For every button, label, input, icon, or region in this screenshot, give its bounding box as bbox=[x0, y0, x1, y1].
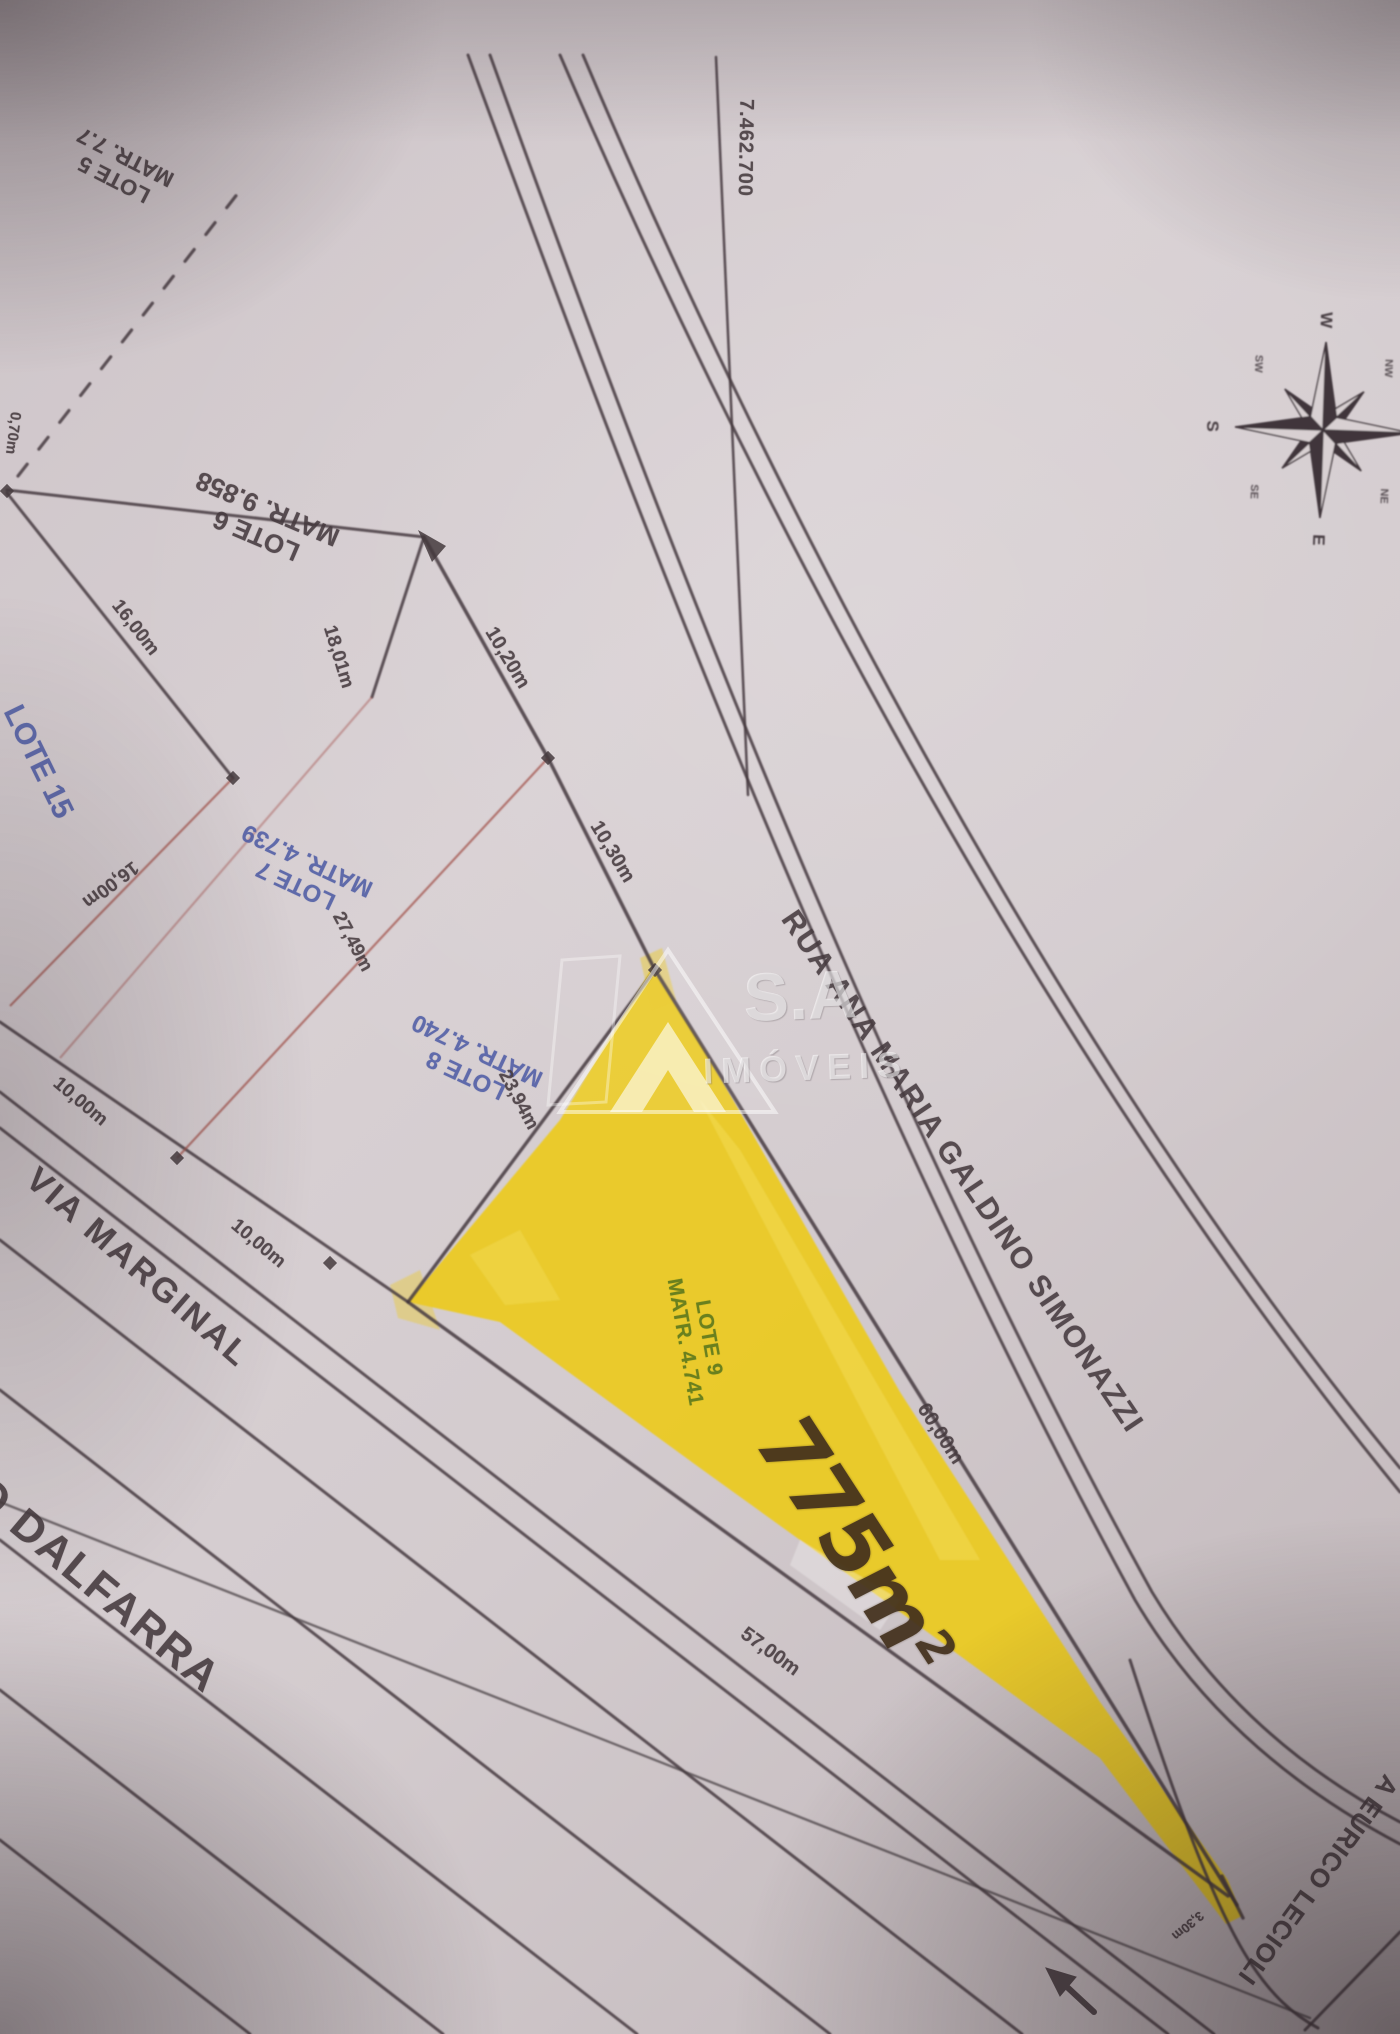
compass-rose: N E S W NE SE SW NW bbox=[1199, 308, 1400, 550]
survey-plan-photo: N E S W NE SE SW NW LOTE 5 MATR. 7.7 LOT… bbox=[0, 0, 1400, 2034]
watermark-word: IMÓVEIS bbox=[702, 1043, 909, 1092]
compass-e-label: E bbox=[1309, 534, 1328, 546]
utm-coordinate-label: 7.462.700 bbox=[733, 99, 758, 197]
compass-ne-label: NE bbox=[1377, 488, 1390, 504]
street-arrow bbox=[1046, 1968, 1094, 2012]
compass-se-label: SE bbox=[1248, 484, 1261, 499]
compass-s-label: S bbox=[1203, 420, 1222, 432]
watermark-brand: S.A bbox=[742, 955, 858, 1037]
compass-w-label: W bbox=[1317, 312, 1337, 330]
compass-nw-label: NW bbox=[1382, 359, 1395, 378]
plan-linework: N E S W NE SE SW NW bbox=[0, 0, 1400, 2034]
compass-sw-label: SW bbox=[1252, 355, 1265, 374]
